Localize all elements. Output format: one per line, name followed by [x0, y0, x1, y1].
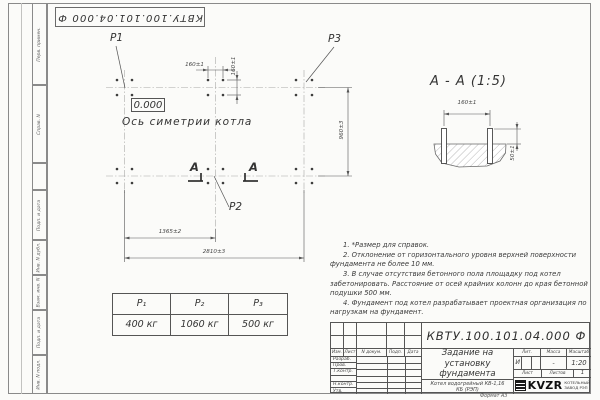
load-table-value-p2: 1060 кг: [171, 315, 229, 336]
kvzr-logo-icon: [515, 380, 526, 391]
section-letter-right: А: [249, 160, 258, 174]
tb-col-data: Дата: [405, 349, 421, 357]
mass-label: Масса: [541, 349, 567, 357]
format-label: Формат А3: [480, 394, 507, 399]
note-1: 1. *Размер для справок.: [330, 241, 590, 251]
scale-value: 1:20: [567, 357, 591, 371]
load-point-label-p2: P2: [229, 201, 242, 213]
tb-hline: [357, 363, 421, 364]
kvzr-logo-text: KVZR: [528, 379, 563, 392]
lit-cell-2: [522, 357, 531, 371]
tb-col-podp: Подп.: [387, 349, 405, 357]
tb-col-ndokum: N докум.: [357, 349, 387, 357]
dim-1365: 1365±2: [140, 229, 200, 235]
doc-number: КВТУ.100.101.04.000 Ф: [421, 323, 591, 349]
section-title: А - А (1:5): [430, 74, 507, 89]
rev-cell: [344, 323, 357, 336]
sheet-label: Лист: [513, 370, 542, 378]
load-point-label-p1: P1: [110, 32, 123, 44]
mass-value: -: [541, 357, 567, 371]
tb-col-izm: Изм.: [331, 349, 344, 357]
notes-block: 1. *Размер для справок. 2. Отклонение от…: [330, 241, 590, 318]
anchor-bolt-right: [488, 129, 493, 164]
factory-name: КОТЕЛЬНЫЙ ЗАВОД РЭП: [564, 381, 590, 390]
rev-cell: [357, 336, 387, 349]
rev-cell: [405, 323, 421, 336]
anchor-bolt-points: [116, 79, 314, 185]
dim-2810: 2810±3: [184, 249, 244, 255]
section-dim-160: 160±1: [442, 100, 492, 106]
load-table-value-p1: 400 кг: [113, 315, 171, 336]
lit-cell-3: [532, 357, 541, 371]
tb-col-list: Лист: [344, 349, 357, 357]
title-block: Изм. Лист N докум. Подп. Дата Разраб. Пр…: [330, 322, 590, 393]
dim-160-vertical: 160±1: [231, 53, 237, 79]
tb-hline: [357, 369, 421, 370]
sheets-label: Листов: [542, 370, 574, 378]
rev-cell: [331, 336, 344, 349]
anchor-bolt-left: [442, 129, 447, 164]
lit-label: Лит.: [513, 349, 541, 357]
section-dimension-arrows: [444, 113, 518, 149]
rev-cell: [405, 336, 421, 349]
drawing-sheet: Перв. примен. Справ. N Подп. и дата Инв.…: [0, 0, 600, 400]
rev-cell: [344, 336, 357, 349]
tb-row-utv: Утв.: [331, 388, 357, 394]
boiler-axis-label: Ось симетрии котла: [122, 116, 252, 128]
tb-hline: [357, 382, 421, 383]
doc-title: Задание на установку фундамента: [421, 349, 513, 380]
section-cut-marks: [188, 173, 258, 181]
section-dim-50: 50±1: [510, 141, 516, 165]
note-2: 2. Отклонение от горизонтального уровня …: [330, 251, 590, 270]
lit-value: И: [513, 357, 522, 371]
load-table: P₁ P₂ P₃ 400 кг 1060 кг 500 кг: [112, 293, 288, 336]
elevation-mark: 0.000: [131, 98, 165, 112]
load-table-value-p3: 500 кг: [229, 315, 287, 336]
sheets-value: 1: [574, 370, 591, 378]
section-view: [434, 110, 521, 167]
note-3: 3. В случае отсутствия бетонного пола пл…: [330, 270, 590, 299]
note-4: 4. Фундамент под котел разрабатывает про…: [330, 299, 590, 318]
load-table-header-p2: P₂: [171, 294, 229, 315]
load-table-header-p1: P₁: [113, 294, 171, 315]
rev-cell: [331, 323, 344, 336]
section-letter-left: А: [190, 160, 199, 174]
scale-label: Масштаб: [567, 349, 591, 357]
dim-160-horizontal: 160±1: [176, 62, 204, 68]
load-table-header-p3: P₃: [229, 294, 287, 315]
plan-centerlines: [106, 57, 325, 229]
rev-cell: [357, 323, 387, 336]
rev-cell: [387, 323, 405, 336]
tb-hline: [357, 388, 421, 389]
load-point-label-p3: P3: [328, 33, 341, 45]
factory-logo-row: KVZR КОТЕЛЬНЫЙ ЗАВОД РЭП: [513, 378, 591, 395]
product-name: Котел водогрейный КВ-1,16 КБ (РЭП): [421, 380, 513, 394]
tb-hline: [357, 376, 421, 377]
dim-960: 960±3: [339, 115, 345, 145]
rev-cell: [387, 336, 405, 349]
